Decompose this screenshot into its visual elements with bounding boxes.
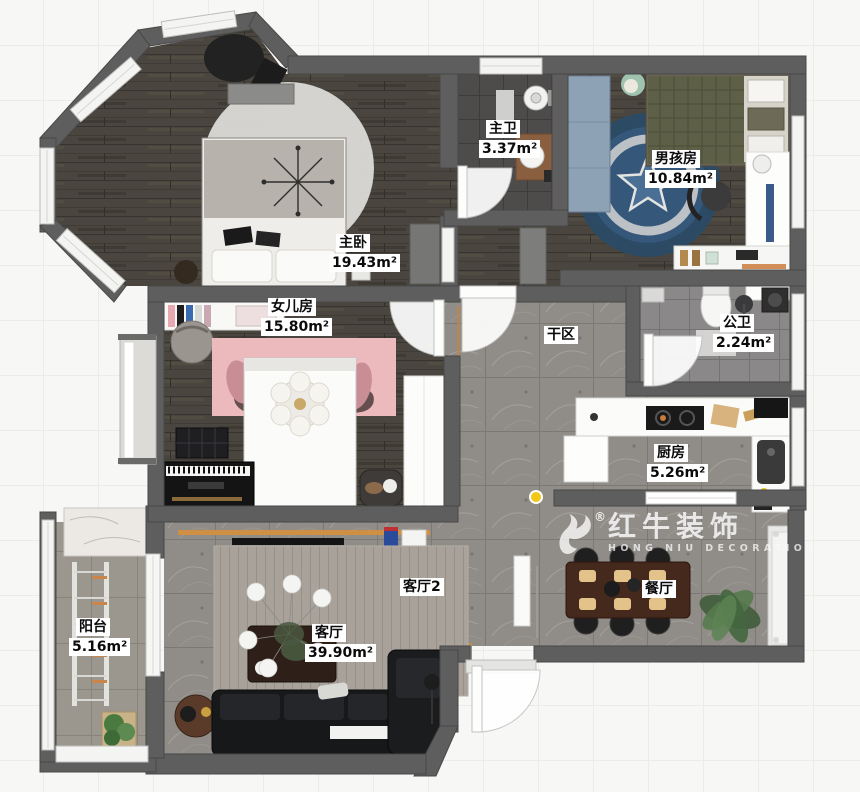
room-name: 主卧 xyxy=(336,234,370,252)
room-label-dry-area: 干区 xyxy=(544,326,578,344)
kitchen-window xyxy=(792,408,804,486)
master-wardrobe xyxy=(410,224,440,284)
girls-bench xyxy=(176,428,228,458)
kitchen-counter xyxy=(576,398,790,436)
wall-right-lower xyxy=(788,510,804,662)
room-label-balcony: 阳台5.16m² xyxy=(76,618,130,656)
wall-bath-boys xyxy=(552,74,568,214)
side-table xyxy=(175,695,217,737)
ensuite-doorway-floor xyxy=(440,168,458,216)
entrance-door xyxy=(466,660,540,732)
room-area: 3.37m² xyxy=(479,140,540,158)
room-area: 5.26m² xyxy=(647,464,708,482)
room-area: 19.43m² xyxy=(329,254,400,272)
room-area: 10.84m² xyxy=(645,170,716,188)
balcony-window-bottom xyxy=(56,746,148,762)
room-label-boys-room: 男孩房10.84m² xyxy=(652,150,716,188)
room-label-living-room: 客厅39.90m² xyxy=(312,624,376,662)
girls-bay-window xyxy=(118,334,156,464)
room-area: 2.24m² xyxy=(713,334,774,352)
room-label-master-bedroom: 主卧19.43m² xyxy=(336,234,400,272)
wall-bottom xyxy=(146,754,426,774)
wall-master-bath-upper xyxy=(440,74,458,168)
room-name: 公卫 xyxy=(720,314,754,332)
wall-boys-bottom xyxy=(560,270,806,286)
master-door-closed xyxy=(442,228,454,282)
hall-cabinet xyxy=(520,228,546,284)
room-name: 女儿房 xyxy=(268,298,316,316)
desk-lamp xyxy=(753,155,771,173)
boys-window xyxy=(792,116,804,228)
teddy-bear xyxy=(624,79,638,93)
balcony-plant xyxy=(102,712,136,748)
room-label-dining-room: 餐厅 xyxy=(642,580,676,598)
hall-floor xyxy=(458,226,568,286)
desk-accessory xyxy=(766,184,774,242)
room-label-public-bath: 公卫2.24m² xyxy=(720,314,774,352)
master-bed xyxy=(202,138,346,290)
public-bath-window xyxy=(792,294,804,390)
room-area: 15.80m² xyxy=(261,318,332,336)
room-name: 餐厅 xyxy=(642,580,676,598)
hallway-cabinet xyxy=(514,556,530,626)
room-name: 阳台 xyxy=(76,618,110,636)
room-name: 干区 xyxy=(544,326,578,344)
screen-divider xyxy=(536,566,538,638)
girls-nightstand xyxy=(360,470,402,506)
room-name: 厨房 xyxy=(654,444,688,462)
room-label-master-bath: 主卫3.37m² xyxy=(486,120,540,158)
room-name: 主卫 xyxy=(486,120,520,138)
room-name: 客厅2 xyxy=(400,578,444,596)
piano xyxy=(162,462,254,506)
room-label-kitchen: 厨房5.26m² xyxy=(654,444,708,482)
wall-dining-bottom xyxy=(534,646,804,662)
wall-hall-corridor xyxy=(514,286,626,302)
wall-public-bath-left xyxy=(626,286,640,396)
floorplan-canvas: d S xyxy=(0,0,860,792)
wall-girls-bottom xyxy=(148,506,458,522)
floorplan-page: d S xyxy=(0,0,860,792)
wall-girls-right xyxy=(444,356,460,506)
master-stool xyxy=(174,260,198,284)
light-point xyxy=(530,491,542,503)
wall-living-right xyxy=(440,650,458,732)
room-label-living-room-2: 客厅2 xyxy=(400,578,444,596)
kitchen-cabinet xyxy=(564,436,608,482)
room-label-daughters-room: 女儿房15.80m² xyxy=(268,298,332,336)
room-name: 客厅 xyxy=(312,624,346,642)
wall-balcony-divider-lower xyxy=(146,672,164,758)
room-name: 男孩房 xyxy=(652,150,700,168)
balcony-marble-counter xyxy=(64,508,148,556)
girls-bed xyxy=(244,358,356,508)
master-desk xyxy=(228,84,294,104)
room-area: 5.16m² xyxy=(69,638,130,656)
master-armchair xyxy=(204,34,264,82)
boys-wardrobe xyxy=(568,76,610,212)
doorway-floor xyxy=(444,302,458,356)
room-area: 39.90m² xyxy=(305,644,376,662)
wall-top xyxy=(288,56,806,74)
